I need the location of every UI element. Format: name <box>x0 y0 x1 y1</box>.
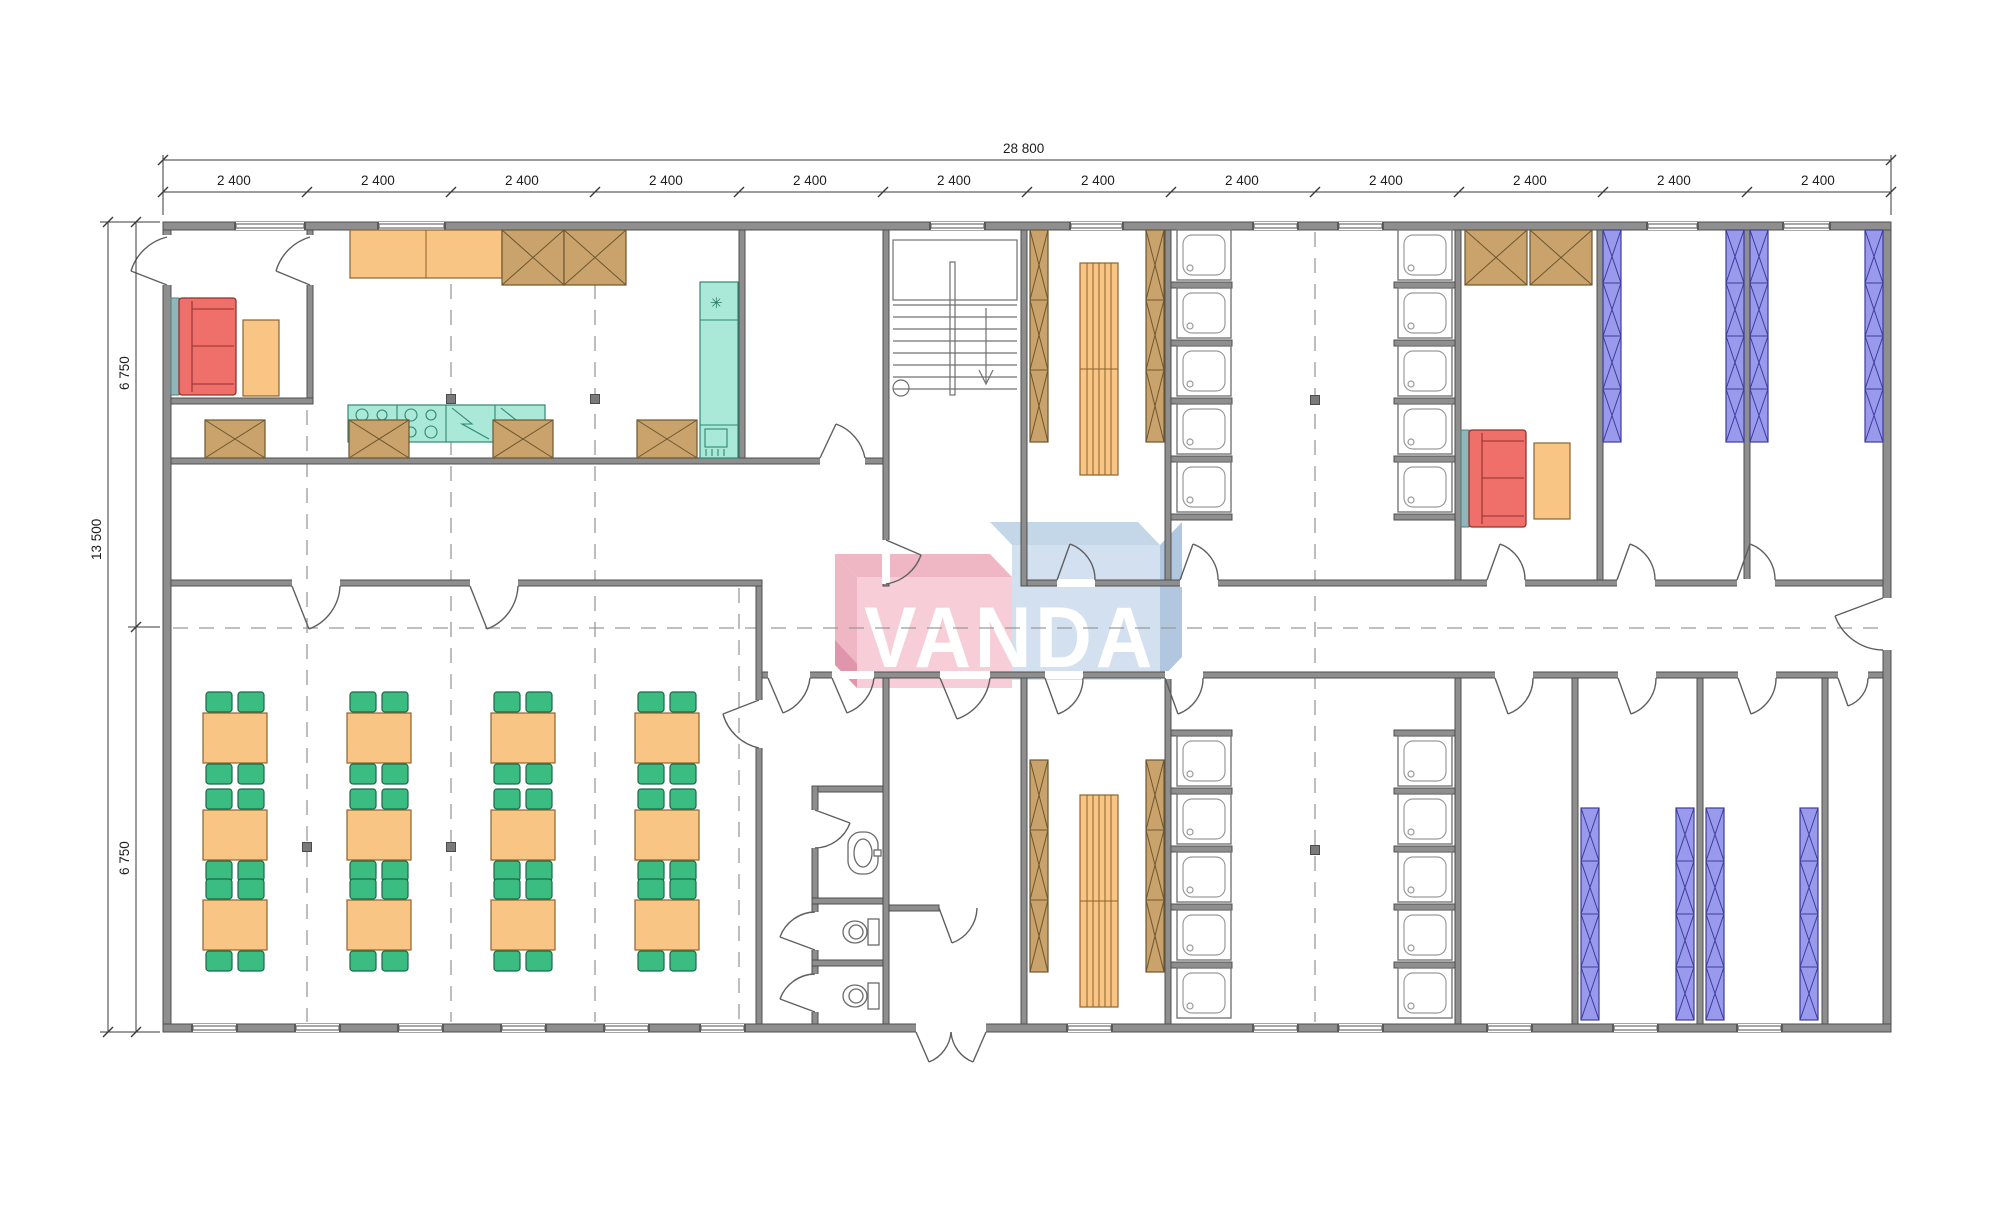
shower-stall <box>1398 288 1452 338</box>
wall-room-divider-b3 <box>1822 678 1828 1024</box>
dimension-label-lower-half: 6 750 <box>117 841 132 875</box>
wall-lounge-right <box>1597 230 1603 580</box>
logo-pink-top-face <box>835 554 1012 577</box>
kitchen-cabinets <box>350 230 502 278</box>
shower-separator <box>1394 962 1455 968</box>
floor-plan-page: VANDA <box>0 0 2000 1216</box>
sofa <box>1469 430 1526 527</box>
wardrobe-strip <box>1146 760 1164 972</box>
shower-separator <box>1394 282 1455 288</box>
side-table <box>243 320 279 396</box>
dimension-label-module: 2 400 <box>505 173 539 188</box>
window <box>234 222 306 230</box>
toilet <box>843 919 879 945</box>
dimension-label-module: 2 400 <box>649 173 683 188</box>
wall-room-divider-top <box>1744 230 1750 580</box>
shower-separator <box>1394 904 1455 910</box>
wall-room-divider-b1 <box>1572 678 1578 1024</box>
shower-stall <box>1177 794 1231 844</box>
shower-stall <box>1398 968 1452 1018</box>
window <box>1337 222 1384 230</box>
wall-dorm-right-bottom <box>1165 678 1171 1024</box>
bunk-bed <box>1080 263 1118 475</box>
window <box>1069 222 1124 230</box>
wall-kitchen-bottom <box>171 458 883 464</box>
shower-stall <box>1177 230 1231 280</box>
shower-separator <box>1171 730 1232 736</box>
window <box>1612 1024 1659 1032</box>
window <box>1736 1024 1783 1032</box>
column-marker <box>303 843 312 852</box>
wall-vestibule-bottom <box>171 398 313 404</box>
wardrobe <box>564 230 626 285</box>
main-entrance-door <box>916 1023 986 1062</box>
dimension-label-total-width: 28 800 <box>1003 141 1044 156</box>
shower-separator <box>1171 788 1232 794</box>
column-marker <box>1311 396 1320 405</box>
window <box>603 1024 650 1032</box>
wall-shower-right-bottom <box>1455 678 1461 1024</box>
side-table <box>1534 443 1570 519</box>
dimension-label-total-height: 13 500 <box>89 519 104 560</box>
exterior-wall-left <box>163 230 171 1024</box>
dimension-label-upper-half: 6 750 <box>117 356 132 390</box>
bunk-bed-tier <box>1800 808 1818 1020</box>
wall-stair-left <box>883 230 889 586</box>
shower-separator <box>1394 788 1455 794</box>
shower-separator <box>1394 456 1455 462</box>
shower-separator <box>1171 456 1232 462</box>
wall-dining-top <box>171 580 762 586</box>
shower-stall <box>1177 462 1231 512</box>
shower-stall <box>1398 346 1452 396</box>
shower-stall <box>1398 852 1452 902</box>
shower-stall <box>1177 288 1231 338</box>
wardrobe <box>349 420 409 458</box>
shower-separator <box>1171 514 1232 520</box>
window <box>1646 222 1699 230</box>
window <box>1252 1024 1299 1032</box>
wall-dining-right <box>756 586 762 1024</box>
shower-separator <box>1171 398 1232 404</box>
shower-stall <box>1398 230 1452 280</box>
shower-stall <box>1398 736 1452 786</box>
window <box>1252 222 1299 230</box>
toilet <box>843 983 879 1009</box>
floor-plan-drawing: VANDA <box>0 0 2000 1216</box>
shower-separator <box>1394 340 1455 346</box>
wall-stair-right <box>1021 230 1027 586</box>
wall-dorm-right-top <box>1165 230 1171 580</box>
bunk-bed-tier <box>1750 230 1768 442</box>
sofa <box>179 298 236 395</box>
wall-corridor-bottom <box>762 672 1883 678</box>
dimension-label-module: 2 400 <box>1081 173 1115 188</box>
dimension-label-module: 2 400 <box>1369 173 1403 188</box>
entry-door <box>131 235 172 285</box>
column-marker <box>447 843 456 852</box>
window <box>699 1024 746 1032</box>
dimension-label-module: 2 400 <box>937 173 971 188</box>
shower-stall <box>1177 736 1231 786</box>
shower-stall <box>1398 404 1452 454</box>
shower-separator <box>1394 398 1455 404</box>
fridge-freezer-unit: ✳ <box>700 282 738 458</box>
column-marker <box>591 395 600 404</box>
shower-stall <box>1177 968 1231 1018</box>
dimension-label-module: 2 400 <box>1225 173 1259 188</box>
wall-entry-partition <box>889 905 939 911</box>
wardrobe-strip <box>1146 230 1164 442</box>
dimension-label-module: 2 400 <box>1513 173 1547 188</box>
window <box>1782 222 1831 230</box>
shower-stall <box>1398 910 1452 960</box>
dimension-label-module: 2 400 <box>793 173 827 188</box>
window <box>397 1024 444 1032</box>
shower-separator <box>1171 846 1232 852</box>
shower-stall <box>1177 910 1231 960</box>
window <box>294 1024 341 1032</box>
bunk-bed <box>1080 795 1118 1007</box>
wardrobe <box>502 230 564 285</box>
shower-separator <box>1394 730 1455 736</box>
shower-stall <box>1177 852 1231 902</box>
sofa-backwall-panel <box>171 298 179 395</box>
logo-blue-top-face <box>990 522 1160 545</box>
wardrobe-strip <box>1030 760 1048 972</box>
wall-basin-room-top <box>818 786 883 792</box>
wall-shower-right-top <box>1455 230 1461 580</box>
window <box>191 1024 238 1032</box>
washbasin <box>848 832 881 874</box>
shower-separator <box>1171 904 1232 910</box>
window <box>1066 1024 1113 1032</box>
wall-kitchen-right <box>739 230 745 458</box>
wardrobe <box>493 420 553 458</box>
wardrobe <box>637 420 697 458</box>
bunk-bed-tier <box>1581 808 1599 1020</box>
window <box>1486 1024 1533 1032</box>
freezer-icon: ✳ <box>710 295 723 312</box>
dimension-label-module: 2 400 <box>1657 173 1691 188</box>
wardrobe <box>1530 230 1592 285</box>
wall-wc-stall1 <box>812 898 883 904</box>
bunk-bed-tier <box>1603 230 1621 442</box>
shower-separator <box>1171 340 1232 346</box>
wardrobe <box>1465 230 1527 285</box>
shower-stall <box>1177 346 1231 396</box>
window <box>929 222 986 230</box>
wall-dorm-left-bottom <box>1021 678 1027 1024</box>
bunk-bed-tier <box>1706 808 1724 1020</box>
dimension-label-module: 2 400 <box>1801 173 1835 188</box>
window <box>1337 1024 1384 1032</box>
bunk-bed-tier <box>1865 230 1883 442</box>
shower-separator <box>1171 962 1232 968</box>
shower-separator <box>1394 514 1455 520</box>
shower-stall <box>1398 462 1452 512</box>
wall-room-divider-b2 <box>1697 678 1703 1024</box>
dimension-label-module: 2 400 <box>361 173 395 188</box>
wardrobe-strip <box>1030 230 1048 442</box>
shower-stall <box>1398 794 1452 844</box>
bunk-bed-tier <box>1676 808 1694 1020</box>
window <box>500 1024 547 1032</box>
window <box>377 222 446 230</box>
shower-separator <box>1171 282 1232 288</box>
wall-wc-right <box>883 678 889 1024</box>
shower-separator <box>1394 846 1455 852</box>
bunk-bed-tier <box>1726 230 1744 442</box>
dimension-label-module: 2 400 <box>217 173 251 188</box>
wall-wc-stall2 <box>812 960 883 966</box>
sofa-backwall-panel <box>1461 430 1469 527</box>
wardrobe <box>205 420 265 458</box>
column-marker <box>447 395 456 404</box>
column-marker <box>1311 846 1320 855</box>
shower-stall <box>1177 404 1231 454</box>
